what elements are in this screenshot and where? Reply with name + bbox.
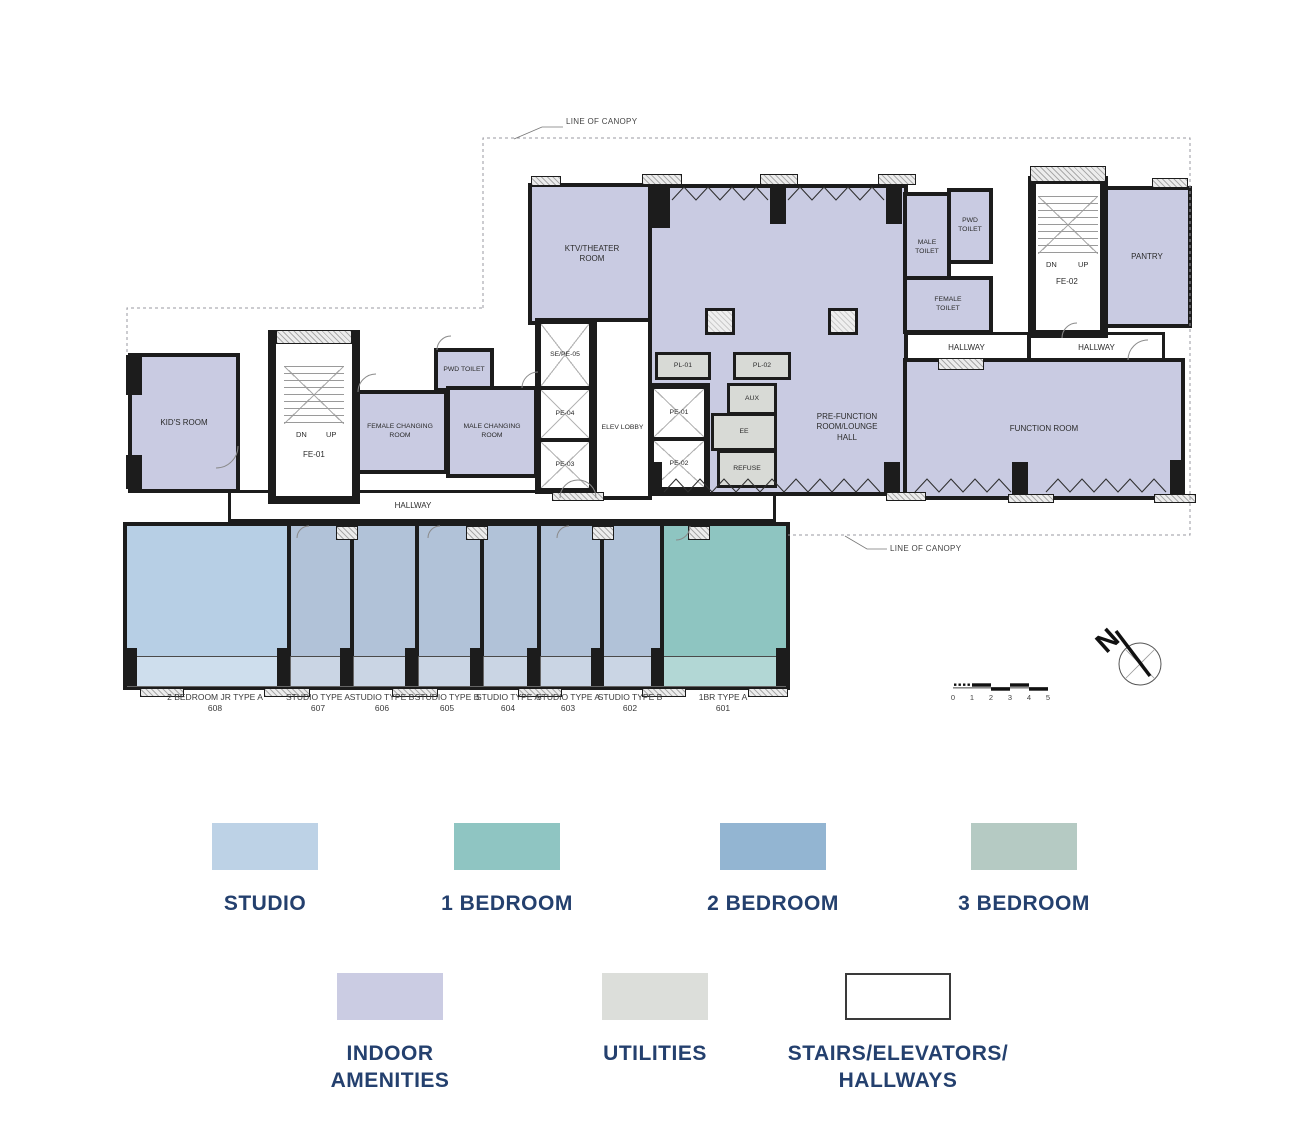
legend-label-3-bedroom: 3 BEDROOM [958,890,1090,917]
pier [1012,462,1028,496]
legend-swatch-indoor-amenities [337,973,443,1020]
pier [340,648,353,686]
room-pantry: PANTRY [1102,186,1192,328]
pier [126,455,142,489]
scale-tick: 4 [1027,693,1031,702]
room-refuse: REFUSE [717,450,777,488]
male-changing-label: MALE CHANGING ROOM [463,423,520,441]
north-label: N [1089,622,1125,659]
legend-swatch-utilities [602,973,708,1020]
unit-label-608: 2 BEDROOM JR TYPE A608 [167,692,263,713]
pier [652,182,670,228]
unit-label-602: STUDIO TYPE B602 [598,692,663,713]
fe02-dn-label: DN [1046,260,1057,269]
pier [648,462,662,496]
pier [770,182,786,224]
pier [651,648,664,686]
hallway-left-label: HALLWAY [383,501,443,511]
entry-hatch [336,526,358,540]
room-function: FUNCTION ROOM [903,358,1185,500]
legend-label-1-bedroom: 1 BEDROOM [441,890,573,917]
mullion-cap [531,176,561,186]
scale-tick: 1 [970,693,974,702]
wall-fixture [705,308,735,335]
pier [886,182,902,224]
legend-label-utilities: UTILITIES [603,1040,707,1067]
pantry-label: PANTRY [1131,252,1163,262]
pier [127,648,137,686]
room-male-changing: MALE CHANGING ROOM [446,386,538,478]
pwd-toilet-top-label: PWD TOILET [958,217,982,235]
balcony-strip [127,656,786,687]
room-pl01: PL-01 [655,352,711,380]
canopy-label-bottom: LINE OF CANOPY [890,544,961,553]
pe02-label: PE-02 [670,460,689,469]
fe01-dn-label: DN [296,430,307,439]
unit-label-607: STUDIO TYPE A607 [286,692,350,713]
entry-hatch [688,526,710,540]
mullion-cap [1152,178,1188,188]
unit-label-604: STUDIO TYPE A604 [476,692,540,713]
elev-lobby-label: ELEV LOBBY [597,424,648,433]
male-toilet-label: MALE TOILET [915,239,939,257]
scale-tick: 0 [951,693,955,702]
room-female-changing: FEMALE CHANGING ROOM [352,390,448,474]
mullion-cap [760,174,798,185]
ee-label: EE [739,428,748,437]
pier [470,648,483,686]
sill-cap [886,492,926,501]
unit-label-601: 1BR TYPE A601 [699,692,748,713]
sill-cap [552,492,604,501]
wall-fixture [828,308,858,335]
pe04-label: PE-04 [556,410,575,419]
legend-label-indoor-amenities: INDOOR AMENITIES [331,1040,450,1095]
fe02-up-label: UP [1078,260,1088,269]
pier [126,355,142,395]
stair-fe01-treads [284,366,344,424]
function-label: FUNCTION ROOM [1010,424,1078,434]
room-pl02: PL-02 [733,352,791,380]
entry-hatch [592,526,614,540]
elevator-pe01: PE-01 [654,389,704,437]
legend-swatch-2-bedroom [720,823,826,870]
pier [884,462,900,496]
stair-fe02-vestibule [1030,166,1106,182]
pier [1170,460,1184,498]
pier [277,648,290,686]
female-changing-label: FEMALE CHANGING ROOM [367,423,433,441]
unit-label-606: STUDIO TYPE B606 [350,692,415,713]
room-female-toilet: FEMALE TOILET [903,276,993,334]
scale-tick: 2 [989,693,993,702]
hallway-right-label: HALLWAY [1078,343,1115,353]
legend-label-studio: STUDIO [224,890,306,917]
aux-label: AUX [745,395,759,404]
scale-tick: 5 [1046,693,1050,702]
pier [527,648,540,686]
unit-label-605: STUDIO TYPE B605 [415,692,480,713]
stair-fe02-treads [1038,196,1098,254]
room-pwd-toilet-top: PWD TOILET [947,188,993,264]
legend-label-2-bedroom: 2 BEDROOM [707,890,839,917]
ktv-label: KTV/THEATER ROOM [565,244,620,265]
room-aux: AUX [727,383,777,415]
pre-function-label: PRE-FUNCTION ROOM/LOUNGE HALL [792,412,902,443]
kids-label: KID'S ROOM [160,418,207,428]
legend-swatch-studio [212,823,318,870]
legend-swatch-1-bedroom [454,823,560,870]
pe01-label: PE-01 [670,409,689,418]
se-pe05-label: SE/PE-05 [550,351,580,360]
north-arrow-icon: N [1089,622,1161,685]
pier [591,648,604,686]
pier [405,648,418,686]
entry-hatch [466,526,488,540]
legend-swatch-stairs-elevators-hallways [845,973,951,1020]
sill-cap [1008,494,1054,503]
mullion-cap [642,174,682,185]
pl02-label: PL-02 [753,362,771,371]
pier [776,648,786,686]
fe01-name-label: FE-01 [303,450,325,459]
elevator-se-pe05: SE/PE-05 [541,324,589,386]
hallway-mid-label: HALLWAY [948,343,985,353]
female-toilet-label: FEMALE TOILET [934,296,961,314]
elevator-pe03: PE-03 [541,442,589,488]
mullion-cap [878,174,916,185]
sill-cap [1154,494,1196,503]
scale-tick: 3 [1008,693,1012,702]
pl01-label: PL-01 [674,362,692,371]
elev-lobby: ELEV LOBBY [593,318,652,500]
sill-cap [748,688,788,697]
floor-plan: HALLWAY HALLWAY HALLWAY KTV/THEATER ROOM… [0,0,1300,1147]
canopy-label-top: LINE OF CANOPY [566,117,637,126]
room-kids: KID'S ROOM [128,353,240,493]
refuse-label: REFUSE [733,465,761,474]
legend-label-stairs-elevators-hallways: STAIRS/ELEVATORS/ HALLWAYS [788,1040,1008,1095]
elevator-pe04: PE-04 [541,390,589,438]
fe01-up-label: UP [326,430,336,439]
legend-swatch-3-bedroom [971,823,1077,870]
room-ee: EE [711,413,777,451]
pe03-label: PE-03 [556,461,575,470]
fe02-name-label: FE-02 [1056,277,1078,286]
pwd-toilet-left-label: PWD TOILET [443,366,484,375]
scale-bar: 0 1 2 3 4 5 [951,683,1050,702]
mullion-cap [938,358,984,370]
room-ktv-theater: KTV/THEATER ROOM [528,183,656,325]
unit-label-603: STUDIO TYPE A603 [536,692,600,713]
stair-fe01-vestibule [276,330,352,344]
